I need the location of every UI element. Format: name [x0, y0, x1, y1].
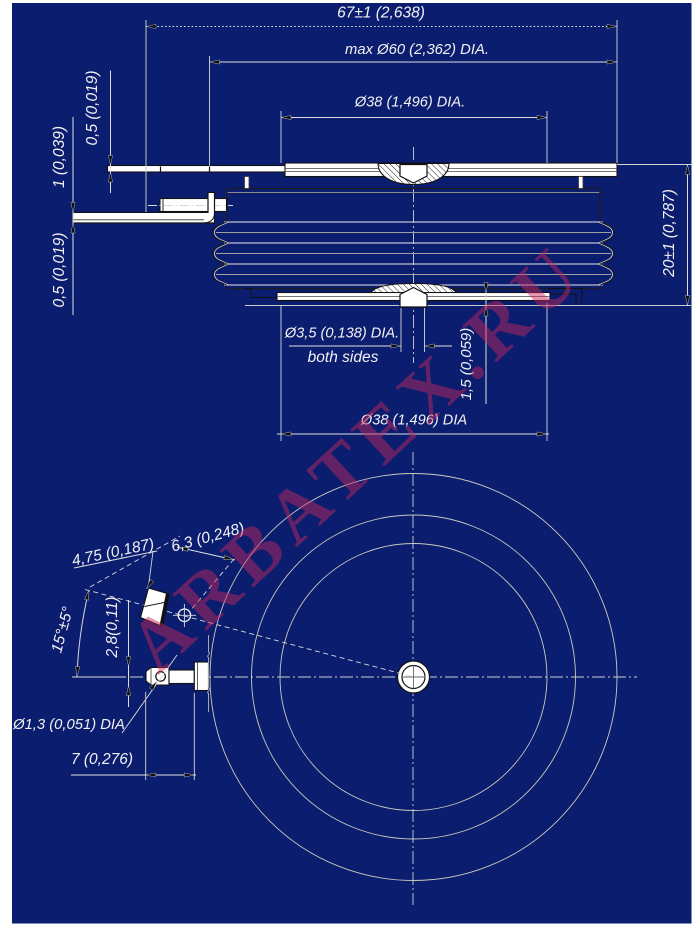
svg-text:Ø3,5 (0,138) DIA.: Ø3,5 (0,138) DIA.: [284, 326, 399, 342]
svg-text:0,5 (0,019): 0,5 (0,019): [51, 233, 68, 308]
svg-text:20±1 (0,787): 20±1 (0,787): [661, 189, 678, 278]
svg-text:max Ø60 (2,362) DIA.: max Ø60 (2,362) DIA.: [345, 42, 489, 58]
svg-text:67±1 (2,638): 67±1 (2,638): [337, 5, 425, 22]
svg-text:1 (0,039): 1 (0,039): [51, 126, 68, 188]
svg-text:Ø1,3 (0,051) DIA: Ø1,3 (0,051) DIA: [12, 717, 125, 733]
svg-text:7 (0,276): 7 (0,276): [71, 751, 133, 768]
svg-text:Ø38 (1,496) DIA.: Ø38 (1,496) DIA.: [354, 95, 465, 111]
svg-text:both sides: both sides: [308, 349, 379, 366]
svg-text:0,5 (0,019): 0,5 (0,019): [84, 71, 101, 146]
